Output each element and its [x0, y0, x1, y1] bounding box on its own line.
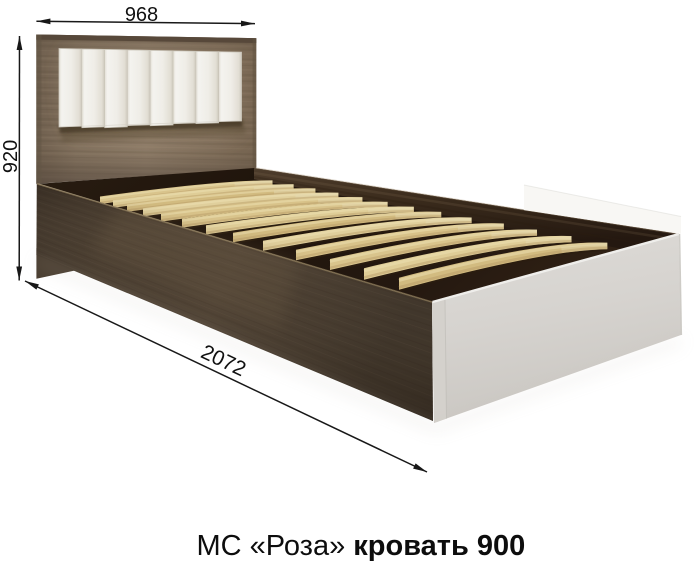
svg-text:920: 920 [0, 140, 22, 173]
svg-text:968: 968 [125, 4, 158, 26]
svg-text:МС «Роза» кровать 900: МС «Роза» кровать 900 [197, 530, 526, 562]
